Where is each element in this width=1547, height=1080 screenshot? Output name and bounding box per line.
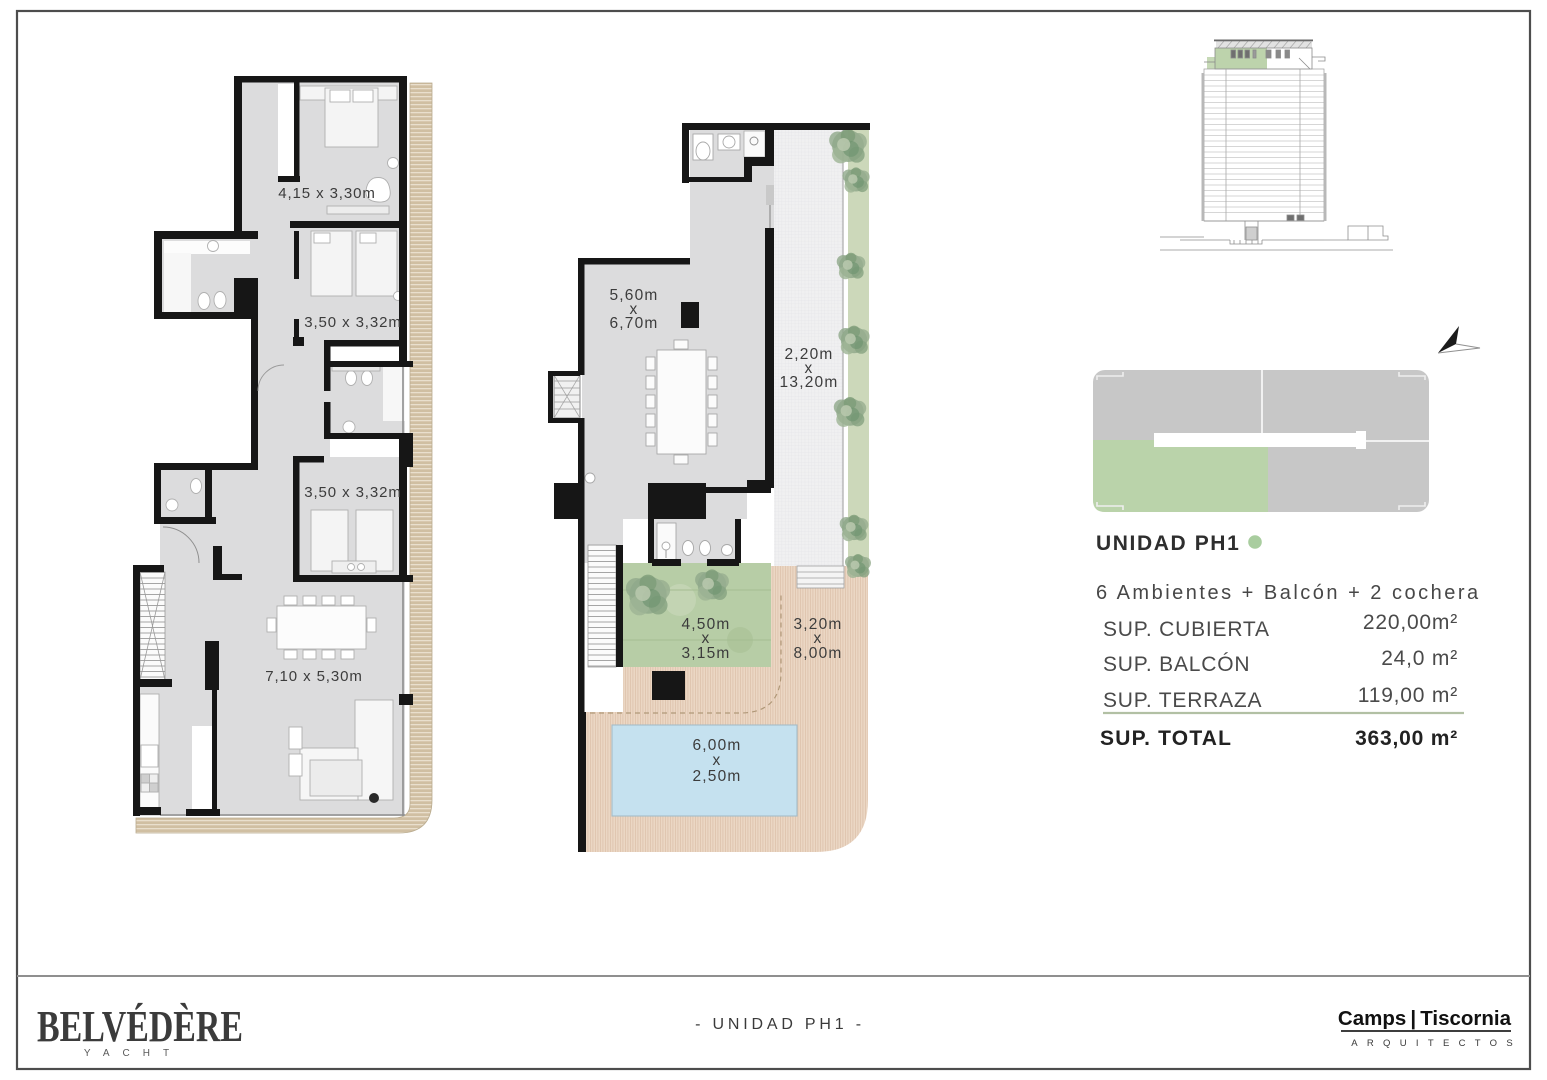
svg-text:7,10 x 5,30m: 7,10 x 5,30m	[265, 668, 363, 685]
svg-text:SUP. BALCÓN: SUP. BALCÓN	[1103, 653, 1250, 676]
svg-text:6 Ambientes + Balcón + 2 coche: 6 Ambientes + Balcón + 2 cochera	[1096, 582, 1481, 604]
svg-text:SUP. TERRAZA: SUP. TERRAZA	[1103, 689, 1262, 712]
svg-text:ARQUITECTOS: ARQUITECTOS	[1351, 1038, 1522, 1049]
svg-text:220,00m²: 220,00m²	[1363, 611, 1458, 634]
svg-text:4,15 x 3,30m: 4,15 x 3,30m	[278, 185, 376, 202]
svg-text:119,00 m²: 119,00 m²	[1358, 684, 1458, 707]
svg-text:UNIDAD PH1: UNIDAD PH1	[1096, 532, 1240, 555]
svg-text:YACHT: YACHT	[84, 1048, 182, 1059]
svg-text:363,00 m²: 363,00 m²	[1355, 727, 1458, 750]
svg-text:13,20m: 13,20m	[780, 374, 839, 391]
svg-text:BELVÉDÈRE: BELVÉDÈRE	[37, 1002, 243, 1051]
svg-text:Camps | Tiscornia: Camps | Tiscornia	[1338, 1007, 1512, 1030]
svg-text:24,0 m²: 24,0 m²	[1381, 647, 1458, 670]
svg-text:6,70m: 6,70m	[609, 315, 658, 332]
svg-text:- UNIDAD PH1 -: - UNIDAD PH1 -	[695, 1016, 865, 1033]
svg-text:2,50m: 2,50m	[692, 768, 741, 785]
svg-text:3,50 x 3,32m: 3,50 x 3,32m	[304, 314, 402, 331]
svg-text:3,50 x 3,32m: 3,50 x 3,32m	[304, 484, 402, 501]
svg-text:SUP. CUBIERTA: SUP. CUBIERTA	[1103, 618, 1270, 641]
svg-text:SUP. TOTAL: SUP. TOTAL	[1100, 727, 1232, 750]
svg-text:3,15m: 3,15m	[681, 645, 730, 662]
svg-text:x: x	[713, 752, 722, 769]
svg-text:8,00m: 8,00m	[793, 645, 842, 662]
